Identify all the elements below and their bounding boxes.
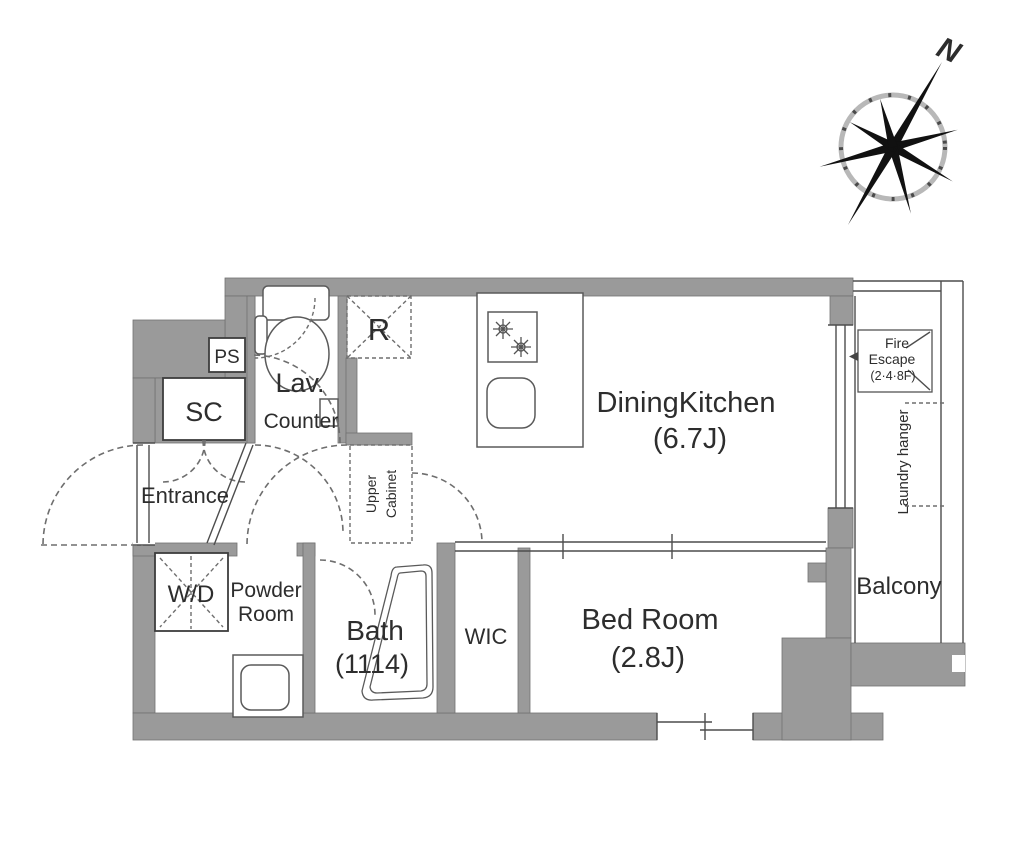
floor-plan-page: N PS SC Lav. Counter R Entrance Upper Ca…: [0, 0, 1024, 848]
label-powder-room-1: Powder: [230, 579, 301, 602]
stove-burner-icon: [511, 337, 531, 357]
label-entrance: Entrance: [141, 483, 229, 508]
label-fire-escape-2: Escape: [869, 351, 916, 367]
vanity-sink-icon: [233, 655, 303, 717]
balcony-drain-notch: [952, 655, 965, 672]
label-dining-kitchen-size: (6.7J): [653, 423, 727, 455]
compass-rose-icon: N: [820, 31, 967, 225]
label-powder-room-2: Room: [238, 603, 294, 626]
label-upper-cabinet-1: Upper: [363, 475, 379, 513]
label-bedroom: Bed Room: [581, 604, 718, 636]
kitchen-sink-icon: [487, 378, 535, 428]
label-bedroom-size: (2.8J): [611, 642, 685, 674]
label-upper-cabinet-2: Cabinet: [383, 470, 399, 518]
label-fire-escape-3: (2·4·8F): [870, 369, 915, 383]
stove-burner-icon: [493, 319, 513, 339]
label-refrigerator: R: [368, 312, 390, 347]
label-balcony: Balcony: [856, 573, 941, 600]
front-door: [41, 443, 155, 545]
dk-bedroom-partition: [455, 534, 826, 559]
kitchen-counter: [477, 293, 583, 447]
label-wic: WIC: [465, 624, 508, 649]
stove-icon: [488, 312, 537, 362]
label-bath: Bath: [346, 615, 404, 646]
front-door-swing-arc: [43, 445, 143, 545]
label-dining-kitchen: DiningKitchen: [597, 387, 776, 419]
bedroom-window: [657, 713, 753, 740]
label-bath-size: (1114): [335, 649, 409, 679]
label-lav-counter: Counter: [264, 410, 339, 433]
label-ps: PS: [214, 347, 239, 368]
label-sc: SC: [185, 397, 223, 427]
label-washer-dryer: W/D: [168, 581, 215, 608]
label-fire-escape-1: Fire: [885, 335, 909, 351]
upper-cabinet-box: [350, 445, 412, 543]
label-lav: Lav.: [275, 368, 324, 398]
label-laundry-hanger: Laundry hanger: [895, 409, 912, 514]
compass-north-label: N: [932, 31, 967, 71]
floor-plan-canvas: N PS SC Lav. Counter R Entrance Upper Ca…: [0, 0, 1024, 848]
balcony-door-window: [828, 325, 853, 508]
